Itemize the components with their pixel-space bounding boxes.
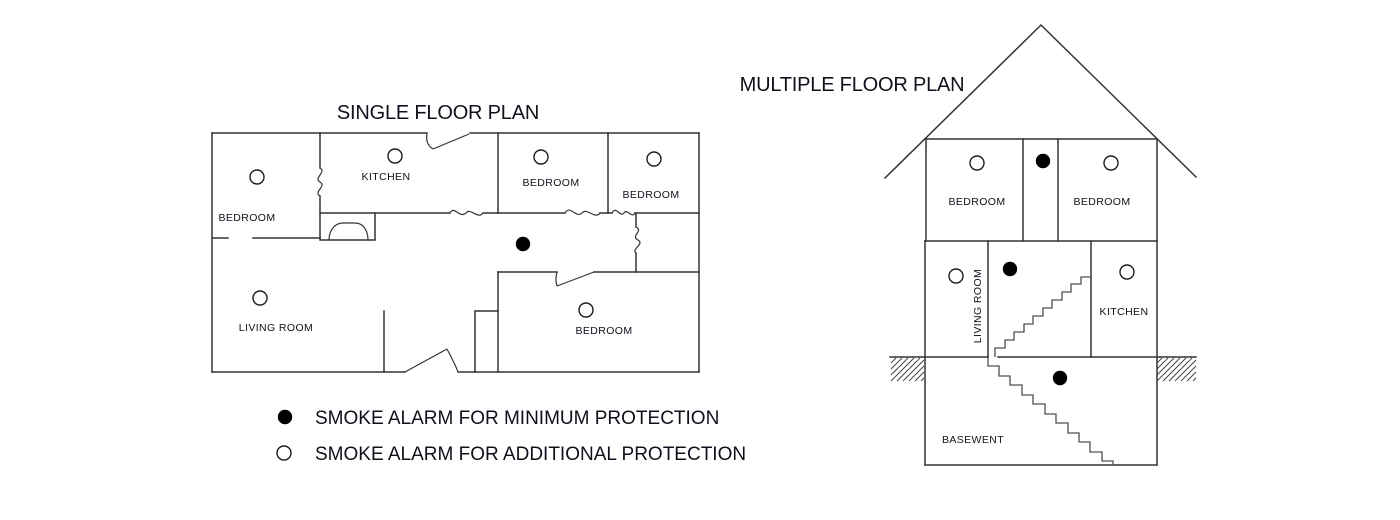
smoke-alarm-minimum-icon bbox=[1053, 371, 1067, 385]
room-label-basement: BASEWENT bbox=[942, 434, 1004, 446]
smoke-alarm-additional-icon bbox=[647, 152, 661, 166]
smoke-alarm-additional-icon bbox=[949, 269, 963, 283]
room-label-bedroom: BEDROOM bbox=[1073, 196, 1130, 208]
walls-bedroom-top-right bbox=[608, 210, 699, 272]
smoke-alarm-minimum-icon bbox=[516, 237, 530, 251]
single-floor-plan: SINGLE FLOOR PLAN bbox=[212, 102, 699, 372]
ground-hatch-right bbox=[1157, 358, 1196, 381]
legend-minimum-label: SMOKE ALARM FOR MINIMUM PROTECTION bbox=[315, 408, 719, 429]
smoke-alarm-additional-icon bbox=[1104, 156, 1118, 170]
corridor-top-wall bbox=[320, 210, 498, 240]
room-label-bedroom: BEDROOM bbox=[948, 196, 1005, 208]
exterior-door-top bbox=[427, 133, 469, 149]
closet-arch bbox=[329, 223, 368, 240]
single-floor-plan-title: SINGLE FLOOR PLAN bbox=[337, 102, 539, 124]
room-label-living-room: LIVING ROOM bbox=[239, 322, 313, 334]
room-label-bedroom: BEDROOM bbox=[218, 212, 275, 224]
room-label-kitchen: KITCHEN bbox=[362, 171, 411, 183]
smoke-alarm-minimum-icon bbox=[1003, 262, 1017, 276]
walls-bedroom-top-middle bbox=[498, 133, 608, 215]
multiple-floor-plan-title: MULTIPLE FLOOR PLAN bbox=[740, 74, 965, 96]
smoke-alarm-additional-icon bbox=[970, 156, 984, 170]
smoke-alarm-placement-diagram: SINGLE FLOOR PLAN bbox=[0, 0, 1400, 520]
filled-circle-icon bbox=[278, 410, 292, 424]
smoke-alarm-additional-icon bbox=[1120, 265, 1134, 279]
stairs-to-upper-floor bbox=[995, 277, 1091, 357]
diagram-canvas: SINGLE FLOOR PLAN bbox=[0, 0, 1400, 520]
room-label-kitchen: KITCHEN bbox=[1100, 306, 1149, 318]
smoke-alarm-additional-icon bbox=[388, 149, 402, 163]
room-label-bedroom: BEDROOM bbox=[522, 177, 579, 189]
smoke-alarm-additional-icon bbox=[253, 291, 267, 305]
ground-hatch-left bbox=[891, 358, 924, 381]
smoke-alarm-minimum-icon bbox=[1036, 154, 1050, 168]
legend-additional-label: SMOKE ALARM FOR ADDITIONAL PROTECTION bbox=[315, 444, 746, 465]
room-label-bedroom: BEDROOM bbox=[575, 325, 632, 337]
smoke-alarm-additional-icon bbox=[534, 150, 548, 164]
room-label-bedroom: BEDROOM bbox=[622, 189, 679, 201]
entry-hall bbox=[384, 311, 458, 372]
room-label-living-room: LIVING ROOM bbox=[972, 269, 984, 343]
hollow-circle-icon bbox=[277, 446, 291, 460]
smoke-alarm-additional-icon bbox=[579, 303, 593, 317]
walls-bedroom-bottom-right bbox=[475, 272, 699, 372]
middle-floor-walls bbox=[925, 241, 1157, 357]
basement-walls bbox=[925, 357, 1157, 465]
legend: SMOKE ALARM FOR MINIMUM PROTECTION SMOKE… bbox=[277, 408, 746, 465]
smoke-alarm-additional-icon bbox=[250, 170, 264, 184]
multiple-floor-plan: MULTIPLE FLOOR PLAN bbox=[740, 25, 1196, 465]
stairs-to-basement bbox=[988, 357, 1113, 465]
